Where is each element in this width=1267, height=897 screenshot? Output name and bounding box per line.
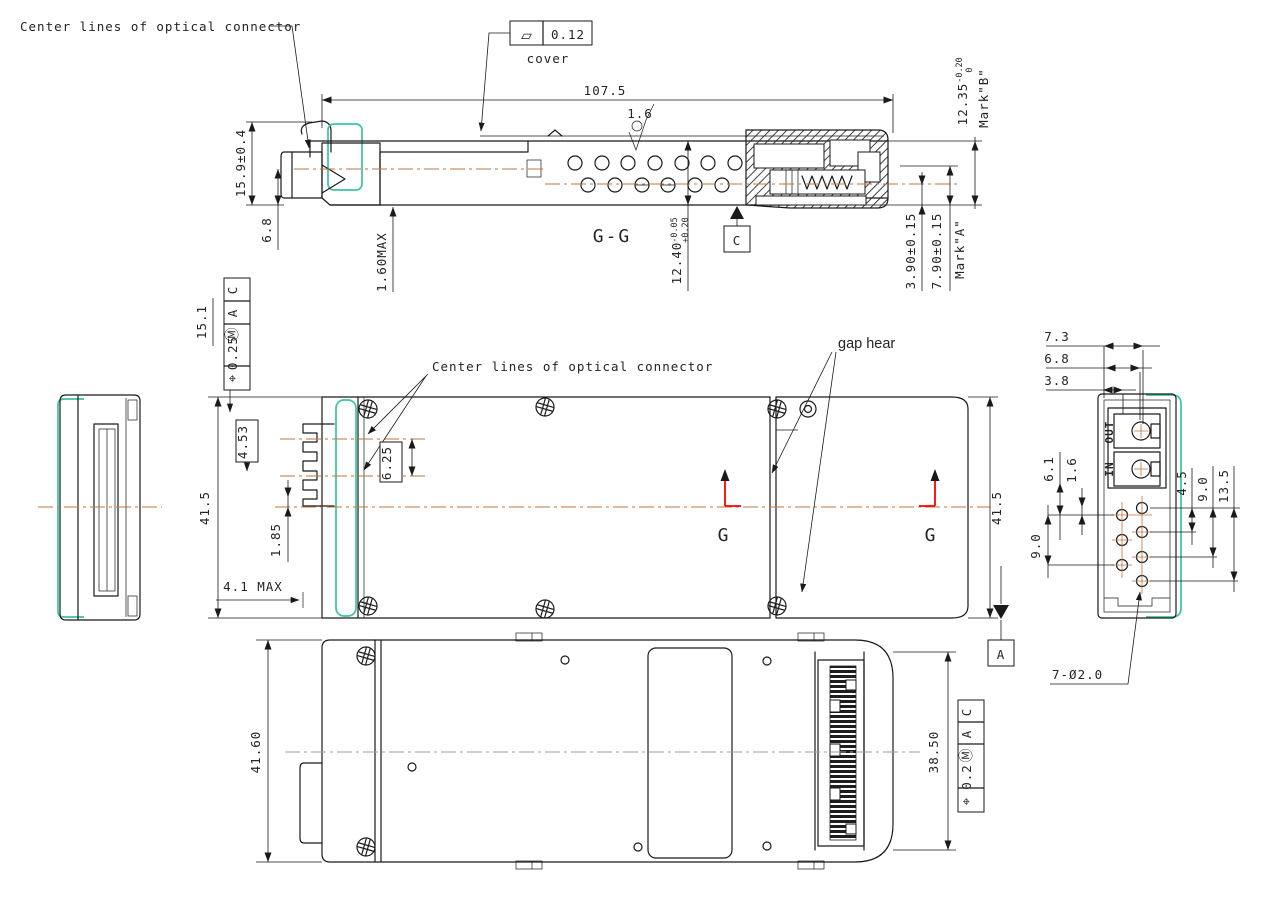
dim-9-0-right: 9.0 (1195, 476, 1210, 502)
note-gap-hear: gap hear (838, 336, 895, 352)
position-fcf-top: C A Ⓜ 0.25 ⌖ 15.1 (194, 278, 250, 412)
screw (358, 596, 378, 616)
dim-section-height: 12.40 (669, 242, 684, 285)
dim-13-5: 13.5 (1216, 469, 1231, 503)
fcf-top-datum-a: A (225, 309, 240, 318)
dim-module-height-tol-lo: -0.20 (955, 57, 965, 83)
engineering-drawing: Center lines of optical connector ▱ 0.12… (0, 0, 1267, 897)
fcf-bottom-value: 0.2 (959, 764, 974, 790)
dim-6-8-end: 6.8 (1044, 351, 1070, 366)
dim-module-height-tol-hi: 0 (965, 67, 975, 72)
edge-tabs (516, 633, 824, 869)
flatness-symbol-icon: ▱ (521, 28, 533, 44)
optical-ports: OUT IN (1103, 408, 1166, 488)
dim-4-5: 4.5 (1174, 470, 1189, 496)
left-end-view (38, 395, 162, 620)
datum-a: A (988, 566, 1014, 666)
section-cut-marks: G G (718, 469, 940, 546)
screw (356, 837, 376, 857)
dim-section-height-tol-hi: +0.20 (681, 217, 691, 243)
fcf-top-datum-c: C (225, 286, 240, 295)
vent-holes (568, 156, 742, 192)
holes-callout: 7-Ø2.0 (1052, 667, 1103, 682)
connector-highlight (336, 400, 356, 616)
cover-label: cover (527, 51, 570, 66)
port-in-label: IN (1103, 461, 1116, 476)
dim-section-height-tol-lo: -0.05 (670, 217, 680, 243)
section-g-left: G (718, 525, 731, 546)
port-out-label: OUT (1103, 421, 1116, 444)
top-view: Center lines of optical connector 4.53 6… (197, 336, 1014, 666)
drawing-sheet: Center lines of optical connector ▱ 0.12… (0, 0, 1267, 897)
fcf-bottom-modifier-icon: Ⓜ (959, 748, 975, 763)
screw (358, 399, 378, 419)
dim-7-3: 7.3 (1044, 329, 1070, 344)
position-fcf-bottom: C A Ⓜ 0.2 ⌖ (958, 700, 984, 812)
dim-3-8: 3.8 (1044, 373, 1070, 388)
bottom-view: 41.60 38.50 C A Ⓜ 0.2 ⌖ (248, 633, 984, 869)
fcf-top-position-icon: ⌖ (225, 374, 241, 383)
mark-b-note: Mark"B" (976, 68, 991, 128)
dim-port-offset: 4.53 (235, 425, 250, 459)
dim-overall-length: 107.5 (584, 83, 627, 98)
dim-port-pitch: 6.25 (379, 446, 394, 480)
note-center-lines-top: Center lines of optical connector (20, 19, 301, 34)
dim-41-60: 41.60 (248, 731, 263, 774)
dim-9-0-left: 9.0 (1028, 533, 1043, 559)
latch-highlight (328, 124, 362, 190)
mark-a-note: Mark"A" (952, 219, 967, 279)
flatness-value: 0.12 (551, 27, 585, 42)
dim-1-85: 1.85 (268, 523, 283, 557)
pivot-hole (800, 401, 816, 417)
dim-optical-axis-height: 7.90±0.15 (929, 213, 944, 290)
sectioned-connector (746, 130, 888, 208)
fcf-bottom-position-icon: ⌖ (959, 797, 975, 806)
datum-a-label: A (997, 647, 1006, 662)
section-label: G-G (593, 226, 632, 247)
dim-1-6: 1.6 (1064, 457, 1079, 483)
fcf-top-value: 0.25 (225, 336, 240, 370)
dim-protrusion: 4.1 MAX (223, 579, 283, 594)
dim-module-height: 12.35 (955, 83, 970, 126)
right-end-view: OUT IN 7.3 6.8 3.8 6.1 1.6 9.0 (1028, 329, 1240, 684)
dim-axis-to-bottom: 6.8 (259, 217, 274, 243)
label-recess (648, 648, 732, 858)
dim-width-right: 41.5 (989, 491, 1004, 525)
note-center-lines-mid: Center lines of optical connector (432, 359, 713, 374)
edge-connector (815, 652, 864, 850)
dim-38-50: 38.50 (926, 731, 941, 774)
datum-c: C (724, 206, 750, 252)
datum-c-label: C (733, 233, 742, 248)
dim-wall-thickness: 1.60MAX (374, 232, 389, 292)
section-g-right: G (925, 525, 938, 546)
dim-latch-height: 15.9±0.4 (233, 129, 248, 197)
screw (535, 397, 555, 417)
dim-15-1: 15.1 (194, 305, 209, 339)
guide-holes (1112, 496, 1152, 594)
dim-tail-axis-height: 3.90±0.15 (903, 213, 918, 290)
screw (535, 599, 555, 619)
fcf-bottom-datum-c: C (959, 708, 974, 717)
flatness-callout: ▱ 0.12 cover (481, 21, 592, 131)
screw (356, 646, 376, 666)
dim-6-1: 6.1 (1041, 456, 1056, 482)
fcf-bottom-datum-a: A (959, 730, 974, 739)
dim-width-left: 41.5 (197, 491, 212, 525)
side-section-view: Center lines of optical connector ▱ 0.12… (20, 19, 991, 292)
